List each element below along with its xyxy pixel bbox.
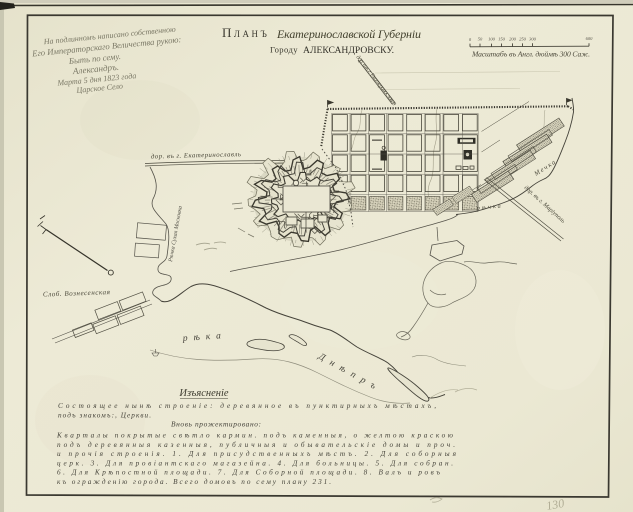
svg-text:Вновь прожектировано:: Вновь прожектировано: bbox=[171, 420, 261, 429]
svg-text:50: 50 bbox=[478, 37, 483, 42]
svg-text:150: 150 bbox=[498, 37, 506, 42]
svg-text:Екатеринославской Губерніи: Екатеринославской Губерніи bbox=[276, 27, 421, 41]
svg-text:300: 300 bbox=[529, 36, 537, 41]
svg-text:къ огражденію города. Всего до: къ огражденію города. Всего домовъ по се… bbox=[57, 478, 331, 486]
svg-text:250: 250 bbox=[519, 37, 527, 42]
svg-text:подъ знакомъ:, Церкви.: подъ знакомъ:, Церкви. bbox=[58, 411, 151, 419]
svg-text:Состоящее нынѣ строеніе: дерев: Состоящее нынѣ строеніе: деревянное въ п… bbox=[58, 402, 436, 410]
svg-text:Городу: Городу bbox=[270, 45, 298, 55]
svg-text:Кварталы покрытые свѣтло карми: Кварталы покрытые свѣтло кармин. подъ ка… bbox=[56, 432, 453, 440]
svg-text:АЛЕКСАНДРОВСКУ.: АЛЕКСАНДРОВСКУ. bbox=[303, 45, 394, 56]
svg-text:200: 200 bbox=[509, 37, 517, 42]
svg-text:Планъ: Планъ bbox=[222, 25, 269, 40]
svg-text:600: 600 bbox=[586, 36, 594, 41]
svg-text:Масштабъ въ Англ. дюймѣ 300 Са: Масштабъ въ Англ. дюймѣ 300 Саж. bbox=[471, 50, 590, 59]
svg-text:Изъясненіе: Изъясненіе bbox=[178, 388, 229, 399]
svg-text:100: 100 bbox=[488, 37, 496, 42]
svg-text:130: 130 bbox=[545, 496, 565, 512]
